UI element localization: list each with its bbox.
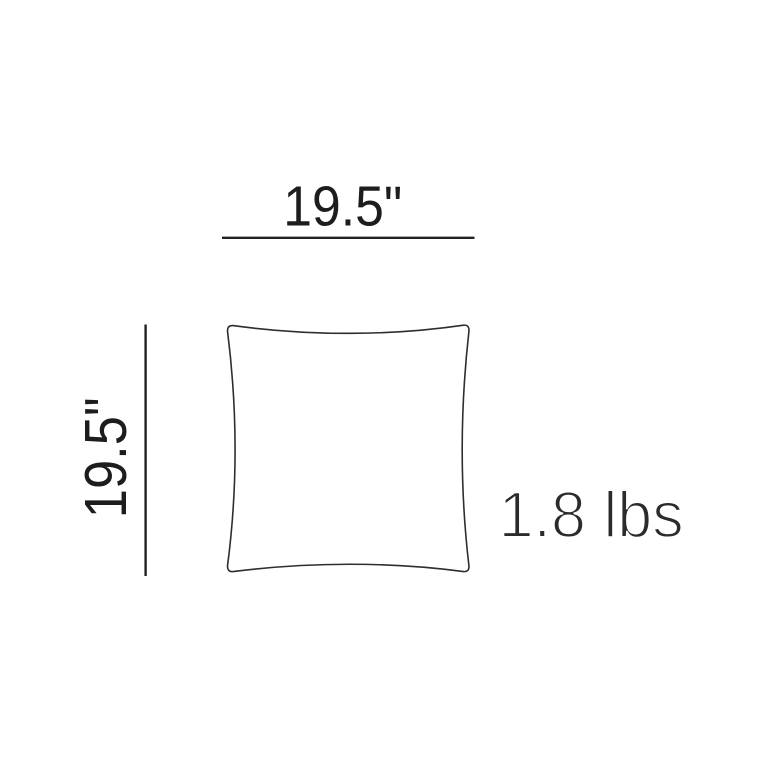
svg-text:19.5": 19.5" [73, 397, 139, 518]
svg-text:19.5": 19.5" [283, 175, 402, 239]
svg-text:1.8 lbs: 1.8 lbs [499, 478, 684, 551]
